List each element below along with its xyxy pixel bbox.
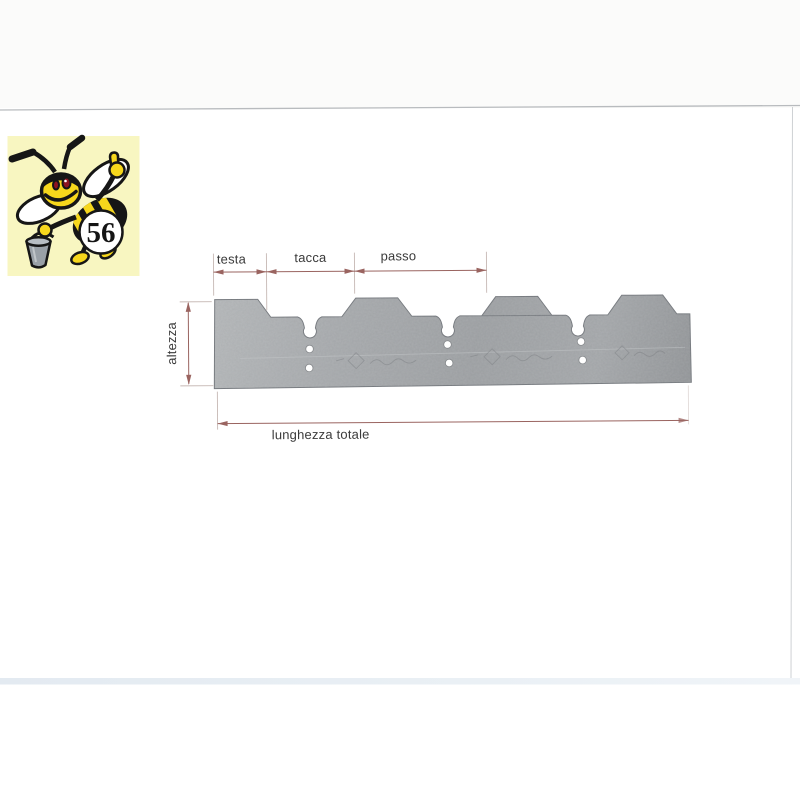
hole — [444, 341, 452, 349]
label-tacca: tacca — [294, 250, 327, 265]
label-testa: testa — [217, 251, 247, 266]
bee-eye-glint — [64, 180, 67, 183]
bee-mascot-logo: 56 — [8, 136, 140, 276]
hole — [577, 338, 585, 346]
page-bottom-edge-band — [0, 678, 800, 685]
hole — [579, 356, 587, 364]
label-passo: passo — [381, 248, 417, 263]
scanned-page: 56 — [0, 0, 800, 800]
hole — [306, 345, 314, 353]
bee-fist — [110, 163, 125, 178]
badge-number: 56 — [87, 217, 116, 249]
bucket-rim — [27, 237, 51, 245]
blade-grain-light — [210, 290, 696, 393]
bee-eye-left — [53, 181, 59, 190]
page-right-edge-line — [791, 107, 793, 679]
dim-line-total-length — [218, 420, 689, 423]
hole — [445, 359, 453, 367]
paper-top-strip — [0, 0, 800, 108]
technical-drawing: testa tacca passo altezza lunghezza tota… — [163, 246, 695, 443]
label-altezza: altezza — [164, 322, 179, 365]
label-lunghezza-totale: lunghezza totale — [272, 427, 370, 443]
scan-image: 56 — [0, 0, 800, 800]
dim-line-height — [188, 303, 189, 384]
bee-hand — [39, 224, 52, 237]
serrated-blade — [210, 290, 696, 393]
hole — [305, 364, 313, 372]
bee-eye-right — [63, 178, 71, 189]
